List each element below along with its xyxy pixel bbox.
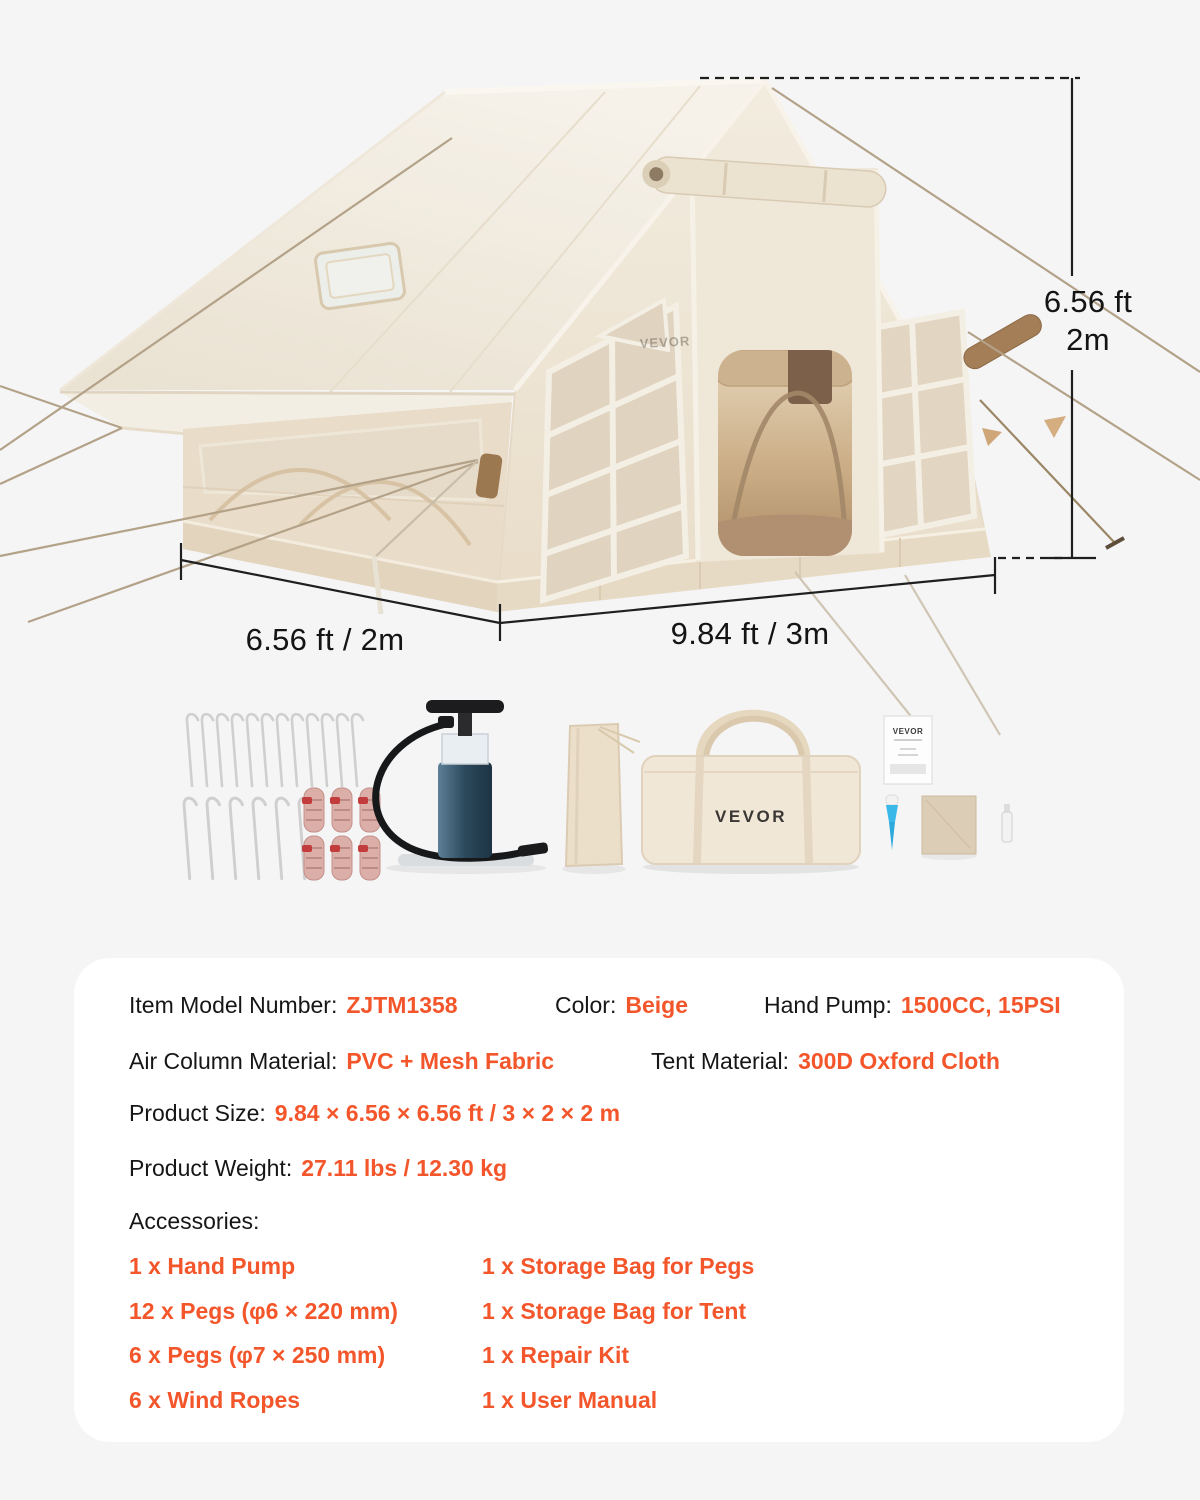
repair-glue-brush bbox=[886, 795, 898, 850]
peg-storage-bag bbox=[562, 724, 640, 874]
ground-mat-glimpse bbox=[982, 428, 1002, 446]
spec-size-value: 9.84 × 6.56 × 6.56 ft / 3 × 2 × 2 m bbox=[275, 1100, 620, 1126]
height-m-label: 2m bbox=[1023, 321, 1153, 359]
height-dimension-label: 6.56 ft 2m bbox=[1023, 283, 1153, 359]
spec-pump: Hand Pump:1500CC, 15PSI bbox=[764, 989, 1061, 1021]
spec-size: Product Size:9.84 × 6.56 × 6.56 ft / 3 ×… bbox=[129, 1097, 620, 1129]
roof-skylight bbox=[315, 242, 406, 309]
repair-glue-tube bbox=[1002, 804, 1012, 842]
side-dimension-label: 6.56 ft / 2m bbox=[185, 621, 465, 659]
hand-pump bbox=[376, 700, 549, 874]
spec-tent-material-label: Tent Material: bbox=[651, 1048, 789, 1074]
pegs-large-group bbox=[184, 798, 311, 879]
user-manual: VEVOR bbox=[884, 716, 932, 784]
tent-illustration: VEVOR bbox=[0, 80, 1200, 740]
repair-fabric-patch bbox=[921, 796, 977, 860]
spec-weight-label: Product Weight: bbox=[129, 1155, 292, 1181]
height-ft-label: 6.56 ft bbox=[1023, 283, 1153, 321]
product-photo: VEVOR bbox=[0, 0, 1200, 950]
accessory-item: 6 x Pegs (φ7 × 250 mm) bbox=[129, 1339, 385, 1371]
accessories-heading: Accessories: bbox=[129, 1205, 259, 1237]
tent-brand-logo: VEVOR bbox=[639, 333, 690, 351]
spec-pump-value: 1500CC, 15PSI bbox=[901, 992, 1061, 1018]
accessory-item: 1 x Hand Pump bbox=[129, 1250, 295, 1282]
accessories-photo-row: VEVOR VEVOR bbox=[184, 700, 1012, 880]
accessory-item: 1 x User Manual bbox=[482, 1384, 657, 1416]
spec-tent-material: Tent Material:300D Oxford Cloth bbox=[651, 1045, 1000, 1077]
spec-weight-value: 27.11 lbs / 12.30 kg bbox=[301, 1155, 507, 1181]
spec-color-label: Color: bbox=[555, 992, 616, 1018]
manual-brand-text: VEVOR bbox=[893, 727, 924, 736]
tent-storage-bag: VEVOR bbox=[642, 714, 860, 874]
pegs-small-group bbox=[187, 714, 363, 786]
spec-color-value: Beige bbox=[625, 992, 688, 1018]
spec-size-label: Product Size: bbox=[129, 1100, 266, 1126]
tent-left-wall bbox=[183, 402, 512, 612]
accessory-item: 12 x Pegs (φ6 × 220 mm) bbox=[129, 1295, 398, 1327]
accessory-item: 6 x Wind Ropes bbox=[129, 1384, 300, 1416]
accessories-heading-label: Accessories: bbox=[129, 1208, 259, 1234]
spec-tent-material-value: 300D Oxford Cloth bbox=[798, 1048, 1000, 1074]
accessory-item: 1 x Storage Bag for Tent bbox=[482, 1295, 746, 1327]
spec-model-value: ZJTM1358 bbox=[346, 992, 457, 1018]
tote-bag-logo: VEVOR bbox=[715, 807, 787, 826]
spec-color: Color:Beige bbox=[555, 989, 688, 1021]
spec-air-column-label: Air Column Material: bbox=[129, 1048, 337, 1074]
spec-model-label: Item Model Number: bbox=[129, 992, 337, 1018]
accessory-item: 1 x Repair Kit bbox=[482, 1339, 629, 1371]
spec-weight: Product Weight:27.11 lbs / 12.30 kg bbox=[129, 1152, 507, 1184]
spec-air-column-value: PVC + Mesh Fabric bbox=[346, 1048, 554, 1074]
front-dimension-label: 9.84 ft / 3m bbox=[610, 615, 890, 653]
spec-air-column: Air Column Material:PVC + Mesh Fabric bbox=[129, 1045, 554, 1077]
wind-ropes-group bbox=[302, 788, 380, 880]
ground-mat-glimpse-2 bbox=[1044, 416, 1066, 438]
spec-card: Item Model Number:ZJTM1358 Color:Beige H… bbox=[74, 958, 1124, 1442]
rope-stake bbox=[1106, 538, 1124, 548]
accessory-item: 1 x Storage Bag for Pegs bbox=[482, 1250, 754, 1282]
spec-model: Item Model Number:ZJTM1358 bbox=[129, 989, 458, 1021]
spec-pump-label: Hand Pump: bbox=[764, 992, 892, 1018]
